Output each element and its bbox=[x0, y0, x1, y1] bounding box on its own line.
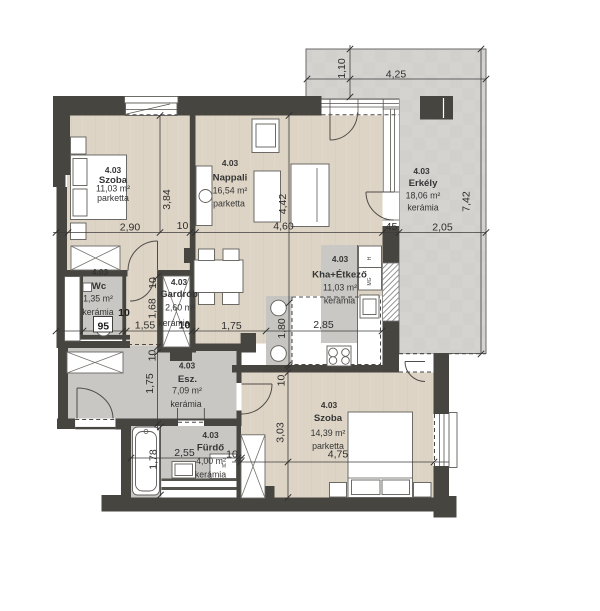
svg-text:45: 45 bbox=[386, 221, 398, 233]
svg-text:4.03: 4.03 bbox=[171, 277, 188, 287]
svg-text:2,85: 2,85 bbox=[313, 319, 334, 331]
svg-text:1,75: 1,75 bbox=[144, 373, 156, 394]
svg-text:2,90: 2,90 bbox=[120, 222, 141, 234]
svg-text:2,60 m²: 2,60 m² bbox=[165, 303, 195, 313]
svg-text:1,80: 1,80 bbox=[276, 318, 288, 339]
svg-text:4.03: 4.03 bbox=[321, 400, 338, 410]
svg-text:2,55: 2,55 bbox=[174, 447, 195, 459]
svg-text:4,60: 4,60 bbox=[273, 221, 294, 233]
svg-text:4.03: 4.03 bbox=[105, 165, 122, 175]
svg-text:4.03: 4.03 bbox=[179, 361, 196, 371]
svg-text:Esz.: Esz. bbox=[178, 374, 197, 385]
svg-text:4,25: 4,25 bbox=[386, 69, 407, 81]
svg-text:1,55: 1,55 bbox=[135, 320, 156, 332]
svg-text:3,84: 3,84 bbox=[161, 189, 173, 210]
svg-text:Gardrób: Gardrób bbox=[160, 289, 198, 300]
svg-text:Szoba: Szoba bbox=[314, 413, 343, 424]
svg-text:10: 10 bbox=[179, 320, 191, 332]
svg-text:Wc: Wc bbox=[92, 281, 107, 292]
svg-text:4.03: 4.03 bbox=[202, 430, 219, 440]
svg-text:11,03 m²: 11,03 m² bbox=[96, 184, 130, 194]
svg-text:7,42: 7,42 bbox=[461, 191, 473, 212]
svg-text:parketta: parketta bbox=[97, 193, 129, 203]
svg-text:kerámia: kerámia bbox=[82, 307, 113, 317]
svg-text:1,78: 1,78 bbox=[148, 449, 160, 470]
svg-text:4.03: 4.03 bbox=[222, 158, 239, 168]
svg-text:11,03 m²: 11,03 m² bbox=[323, 283, 357, 293]
svg-text:3,03: 3,03 bbox=[275, 422, 287, 443]
svg-text:kerámia: kerámia bbox=[407, 203, 438, 213]
svg-text:10: 10 bbox=[118, 307, 130, 319]
svg-text:kerámia: kerámia bbox=[170, 399, 201, 409]
svg-text:10: 10 bbox=[147, 350, 159, 362]
svg-text:4.03: 4.03 bbox=[413, 166, 430, 176]
svg-text:1,75: 1,75 bbox=[221, 320, 242, 332]
svg-text:H: H bbox=[367, 256, 373, 260]
svg-text:4,42: 4,42 bbox=[277, 194, 289, 215]
svg-text:1,35 m²: 1,35 m² bbox=[83, 294, 113, 304]
svg-text:Erkély: Erkély bbox=[409, 178, 438, 189]
svg-text:Nappali: Nappali bbox=[213, 173, 248, 184]
svg-text:14,39 m²: 14,39 m² bbox=[311, 428, 346, 438]
svg-text:Fürdő: Fürdő bbox=[197, 443, 224, 454]
svg-text:MG: MG bbox=[367, 277, 373, 285]
svg-text:1,10: 1,10 bbox=[336, 58, 348, 79]
svg-text:kerámia: kerámia bbox=[195, 470, 226, 480]
svg-text:4.03: 4.03 bbox=[332, 254, 349, 264]
svg-text:2,05: 2,05 bbox=[432, 222, 453, 234]
svg-text:95: 95 bbox=[97, 321, 109, 333]
svg-text:M: M bbox=[222, 464, 226, 470]
svg-text:10: 10 bbox=[177, 220, 189, 232]
svg-text:4,75: 4,75 bbox=[328, 449, 349, 461]
svg-text:10: 10 bbox=[226, 449, 238, 461]
svg-text:parketta: parketta bbox=[213, 199, 245, 209]
svg-text:4.03: 4.03 bbox=[92, 267, 109, 277]
svg-text:1,68: 1,68 bbox=[147, 298, 159, 319]
svg-text:10: 10 bbox=[147, 277, 159, 289]
svg-text:10: 10 bbox=[276, 375, 288, 387]
svg-text:16,54 m²: 16,54 m² bbox=[213, 186, 248, 196]
svg-text:kerámia: kerámia bbox=[324, 296, 355, 306]
svg-text:7,09 m²: 7,09 m² bbox=[172, 386, 202, 396]
svg-text:Kha+Étkező: Kha+Étkező bbox=[312, 269, 367, 281]
svg-text:18,06 m²: 18,06 m² bbox=[406, 191, 441, 201]
